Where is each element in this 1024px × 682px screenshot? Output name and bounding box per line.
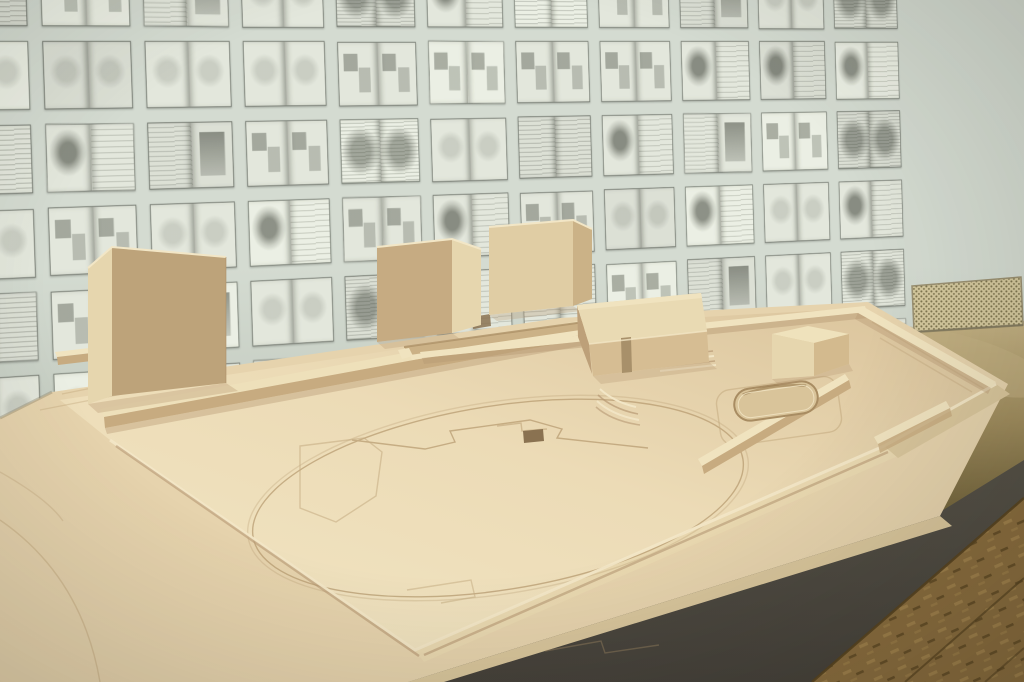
- model-overlay: [0, 0, 1024, 682]
- slab-block-b: [489, 220, 592, 321]
- tall-tower-block: [88, 247, 238, 413]
- pavilion: [577, 293, 717, 384]
- plaza-square-pit: [523, 429, 544, 443]
- photo-architectural-model-scene: [0, 0, 1024, 682]
- ventilation-grille: [912, 277, 1023, 332]
